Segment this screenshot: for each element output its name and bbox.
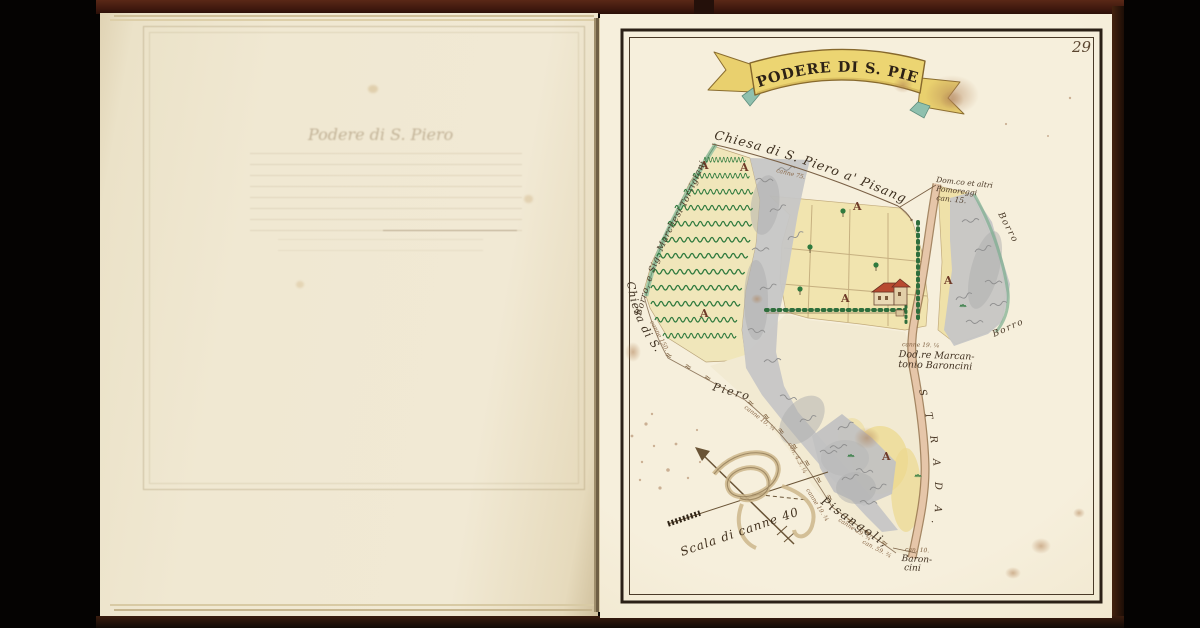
field-letter-a: A <box>699 307 709 320</box>
owner-measure: canne 19. ¼ <box>902 341 940 349</box>
book-photo: Podere di S. Piero <box>0 0 1200 628</box>
scale-bar <box>668 513 700 524</box>
stain <box>368 85 378 93</box>
road-label-letter: A <box>932 504 943 513</box>
page-edge-line <box>110 19 594 21</box>
page-edge-line <box>110 604 594 606</box>
stain <box>524 195 533 203</box>
road-label-letter: T <box>922 411 934 421</box>
neighbor-se-line: cini <box>904 563 921 574</box>
arrow-fletching <box>777 526 794 542</box>
field-letter-a: A <box>739 161 749 174</box>
estate-map: ≈ ≈ ≈ ≈ ≈ ≈ ≈ ≈ ≈ ≈ ≈ ≈ ≈ ≈ A A A A A A … <box>600 14 1112 618</box>
stain <box>296 281 304 288</box>
road-label-letter: . <box>929 520 940 524</box>
ghost-footnote <box>278 239 483 255</box>
road-label-letter: S <box>916 388 928 397</box>
road-label-letter: D <box>932 481 943 490</box>
neighbor-se-measure: can. 10. <box>905 546 930 554</box>
owner-label: canne 19. ¼ Dod.re Marcan- tonio Baronci… <box>897 341 975 373</box>
field-letter-a: A <box>840 292 850 305</box>
road-label-letter: R <box>927 434 939 444</box>
left-page: Podere di S. Piero <box>100 13 598 616</box>
right-page: ≈ ≈ ≈ ≈ ≈ ≈ ≈ ≈ ≈ ≈ ≈ ≈ ≈ ≈ A A A A A A … <box>600 14 1112 618</box>
ghost-paragraph <box>250 153 522 233</box>
road-label-letter: A <box>930 457 942 466</box>
neighbor-se-label: can. 10. Baron- cini <box>900 546 933 575</box>
banner-tail-left <box>708 52 756 92</box>
page-edge-line <box>114 15 594 17</box>
book-cover-top <box>96 0 1124 14</box>
field-letter-a: A <box>852 200 862 213</box>
field-letter-a: A <box>943 274 953 287</box>
ghost-rule <box>383 230 517 231</box>
ghost-title: Podere di S. Piero <box>308 125 548 144</box>
compass-ribbon <box>714 453 778 500</box>
ghost-frame-inner <box>149 32 579 484</box>
book-cover-right-edge <box>1112 6 1124 622</box>
page-number: 29 <box>1071 38 1092 56</box>
book-spine-notch <box>694 0 714 14</box>
page-edge-line <box>114 609 592 611</box>
field-letter-a: A <box>881 450 891 463</box>
